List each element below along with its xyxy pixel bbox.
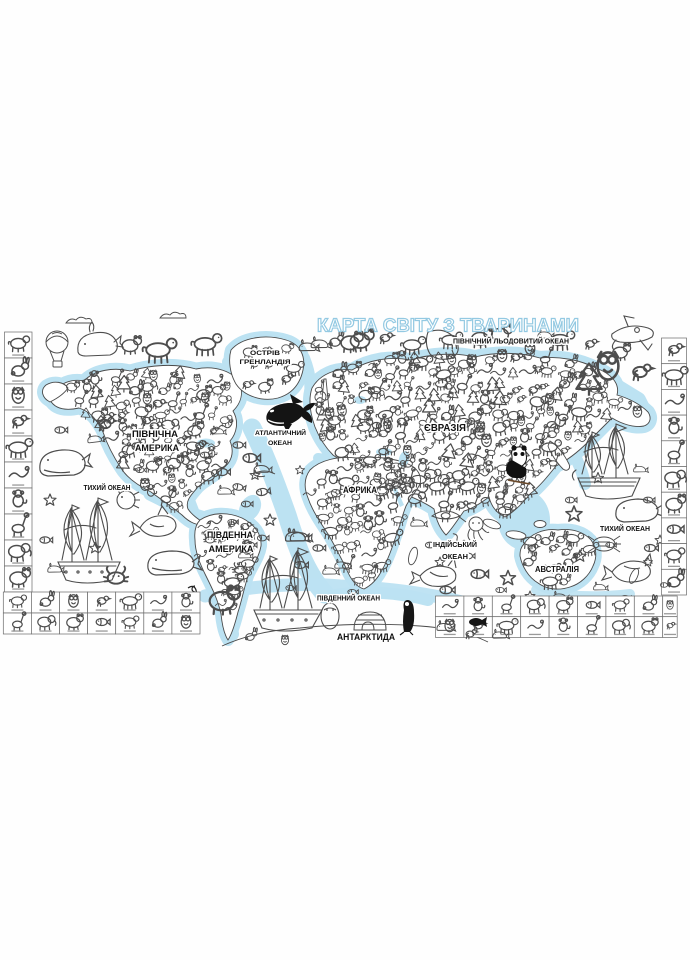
svg-text:АФРИКА: АФРИКА	[343, 485, 377, 495]
svg-text:АТЛАНТИЧНИЙ: АТЛАНТИЧНИЙ	[255, 428, 306, 437]
svg-text:АНТАРКТИДА: АНТАРКТИДА	[337, 632, 395, 642]
svg-text:ЄВРАЗІЯ: ЄВРАЗІЯ	[424, 423, 466, 434]
svg-text:ПІВДЕННИЙ ОКЕАН: ПІВДЕННИЙ ОКЕАН	[317, 594, 380, 603]
svg-text:АВСТРАЛІЯ: АВСТРАЛІЯ	[535, 565, 579, 574]
svg-text:ОСТРІВ: ОСТРІВ	[250, 350, 280, 357]
svg-text:ОКЕАН: ОКЕАН	[442, 554, 468, 561]
svg-text:ГРЕНЛАНДІЯ: ГРЕНЛАНДІЯ	[240, 359, 291, 366]
svg-text:ТИХИЙ ОКЕАН: ТИХИЙ ОКЕАН	[84, 483, 131, 492]
svg-text:ТИХИЙ ОКЕАН: ТИХИЙ ОКЕАН	[600, 524, 650, 533]
svg-text:ІНДІЙСЬКИЙ: ІНДІЙСЬКИЙ	[433, 540, 477, 549]
svg-text:КАРТА СВІТУ З ТВАРИНАМИ: КАРТА СВІТУ З ТВАРИНАМИ	[317, 316, 579, 336]
svg-text:ПІВНІЧНИЙ ЛЬОДОВИТИЙ ОКЕАН: ПІВНІЧНИЙ ЛЬОДОВИТИЙ ОКЕАН	[453, 337, 569, 346]
svg-text:АМЕРИКА: АМЕРИКА	[135, 443, 179, 453]
svg-text:ПІВНІЧНА: ПІВНІЧНА	[132, 429, 179, 439]
svg-text:ОКЕАН: ОКЕАН	[268, 440, 292, 447]
